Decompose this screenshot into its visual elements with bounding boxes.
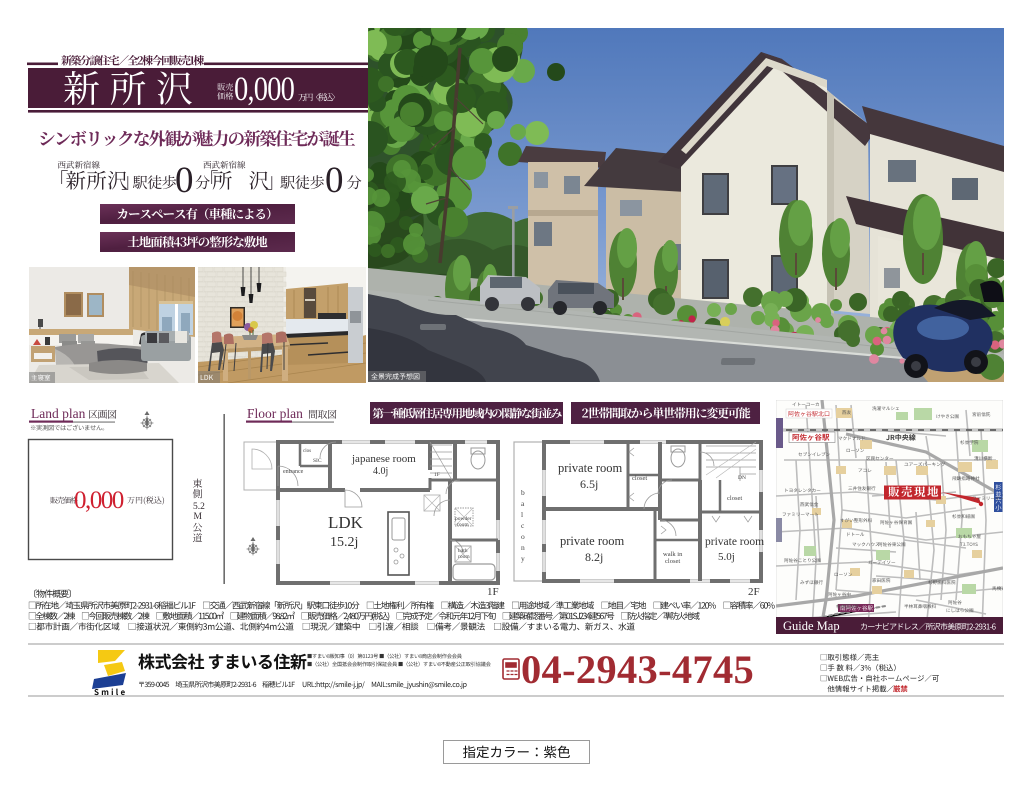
svg-text:M: M [194,512,203,522]
svg-text:room: room [457,522,469,528]
svg-text:15.2j: 15.2j [330,535,358,550]
svg-text:closet: closet [665,558,680,565]
svg-text:entrance: entrance [283,469,304,475]
svg-text:8.2j: 8.2j [585,550,603,564]
svg-text:DN: DN [738,475,746,481]
svg-text:LDK: LDK [328,513,364,532]
svg-text:walk in: walk in [663,551,683,558]
svg-text:private room: private room [558,461,622,475]
svg-text:5.0j: 5.0j [718,551,735,563]
svg-text:5.2: 5.2 [193,502,205,512]
svg-text:closet: closet [632,475,647,482]
svg-text:6.5j: 6.5j [580,477,598,491]
svg-text:y: y [521,554,525,563]
svg-text:clos: clos [303,449,311,454]
svg-text:SIC: SIC [313,458,322,464]
svg-text:b: b [521,488,525,497]
svg-text:c: c [521,521,525,530]
svg-text:1F: 1F [434,472,440,478]
svg-text:private room: private room [560,534,624,548]
svg-text:a: a [521,499,525,508]
svg-text:l: l [521,510,523,519]
svg-text:Land plan: Land plan [31,406,86,421]
svg-text:private room: private room [705,536,764,548]
svg-text:closet: closet [727,495,742,502]
svg-text:4.0j: 4.0j [373,466,388,477]
svg-text:Floor plan: Floor plan [247,406,303,421]
svg-text:japanese room: japanese room [351,453,416,465]
svg-text:room: room [458,554,470,560]
svg-text:n: n [521,543,525,552]
svg-text:o: o [521,532,525,541]
